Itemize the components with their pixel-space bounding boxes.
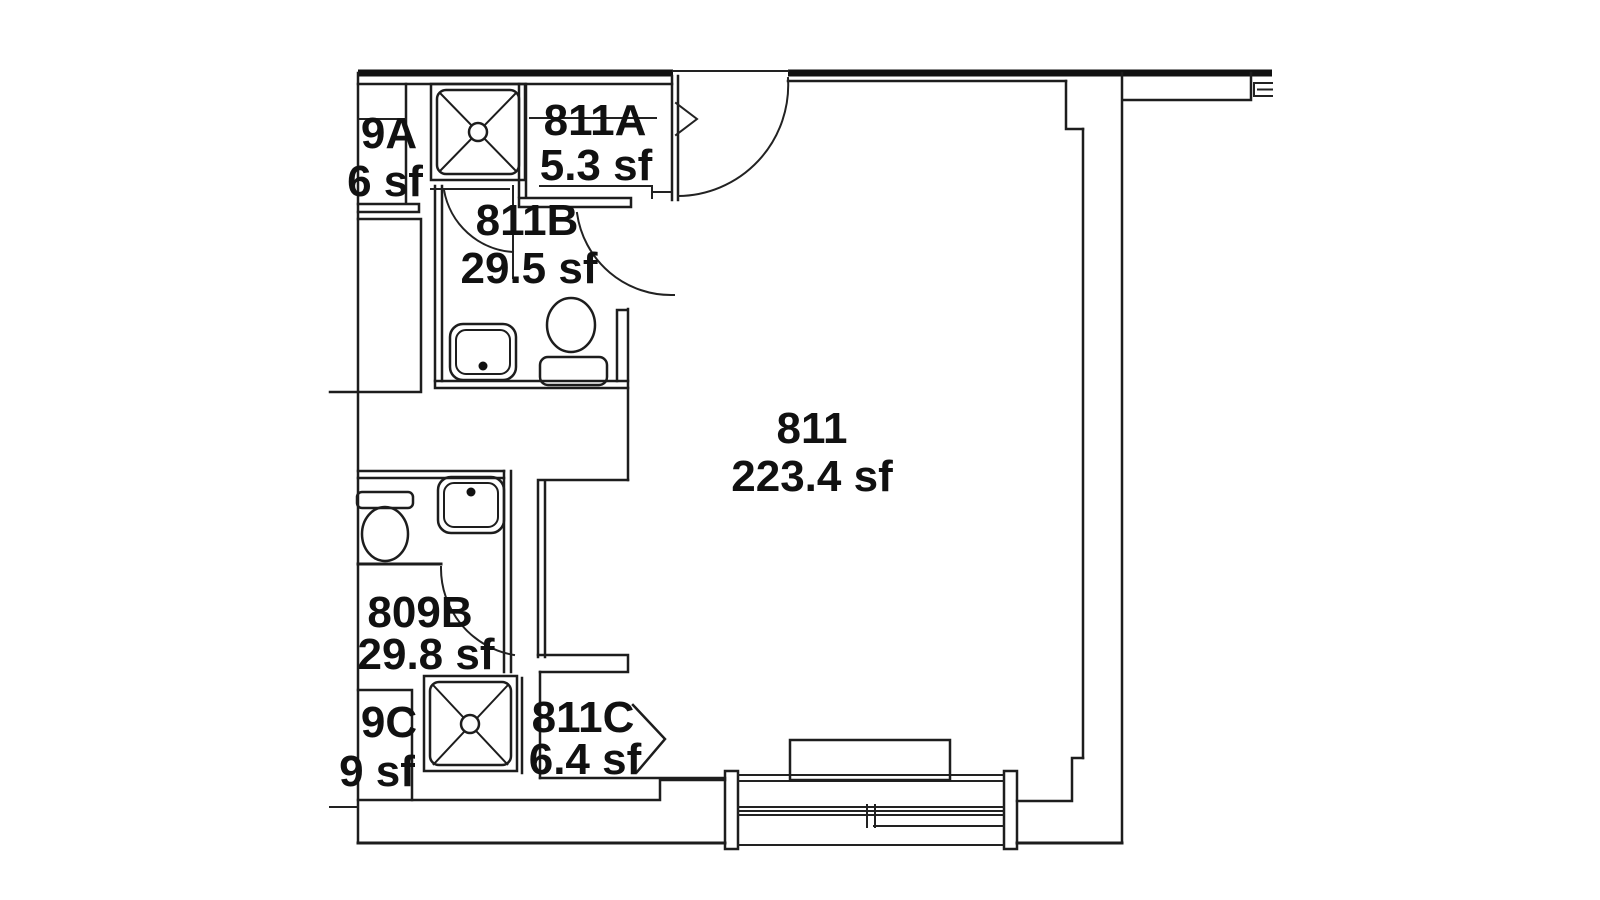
shower-lower-icon [424, 676, 517, 771]
entry-door-swing-icon [678, 78, 788, 196]
shower-upper-icon [431, 84, 525, 189]
room-809a-number: 9A [361, 109, 417, 158]
room-811a-number: 811A [544, 96, 647, 145]
room-811b-number: 811B [476, 196, 579, 245]
room-label-809b: 809B 29.8 sf [358, 588, 495, 679]
room-label-809c: 9C 9 sf [339, 698, 417, 796]
room-809c-area: 9 sf [339, 747, 415, 796]
room-811-area: 223.4 sf [731, 452, 893, 501]
main-room-left-walls [538, 480, 628, 657]
room-809c-number: 9C [361, 698, 417, 747]
right-wall [1066, 73, 1122, 843]
window-icon [725, 771, 1017, 849]
room-809a-area: 6 sf [347, 157, 423, 206]
sink-upper-icon [450, 324, 516, 380]
room-label-811c: 811C 6.4 sf [529, 693, 642, 784]
room-label-811: 811 223.4 sf [731, 404, 893, 501]
room-809b-area: 29.8 sf [358, 630, 495, 679]
floor-plan-canvas: 9A 6 sf 811A 5.3 sf 811B 29.5 sf 811 223… [0, 0, 1600, 900]
sink-lower-icon [438, 477, 504, 533]
wall-chase [330, 219, 421, 392]
top-wall-end-detail [1254, 83, 1272, 96]
room-811b-area: 29.5 sf [461, 244, 598, 293]
room-811-number: 811 [777, 404, 848, 453]
floor-plan: 9A 6 sf 811A 5.3 sf 811B 29.5 sf 811 223… [0, 0, 1600, 900]
room-811c-area: 6.4 sf [529, 735, 642, 784]
room-label-811a: 811A 5.3 sf [540, 96, 653, 190]
room-811a-area: 5.3 sf [540, 141, 653, 190]
toilet-upper-icon [540, 298, 607, 385]
exterior-top-wall [358, 71, 1272, 100]
toilet-lower-icon [357, 492, 413, 561]
room-label-811b: 811B 29.5 sf [461, 196, 598, 293]
